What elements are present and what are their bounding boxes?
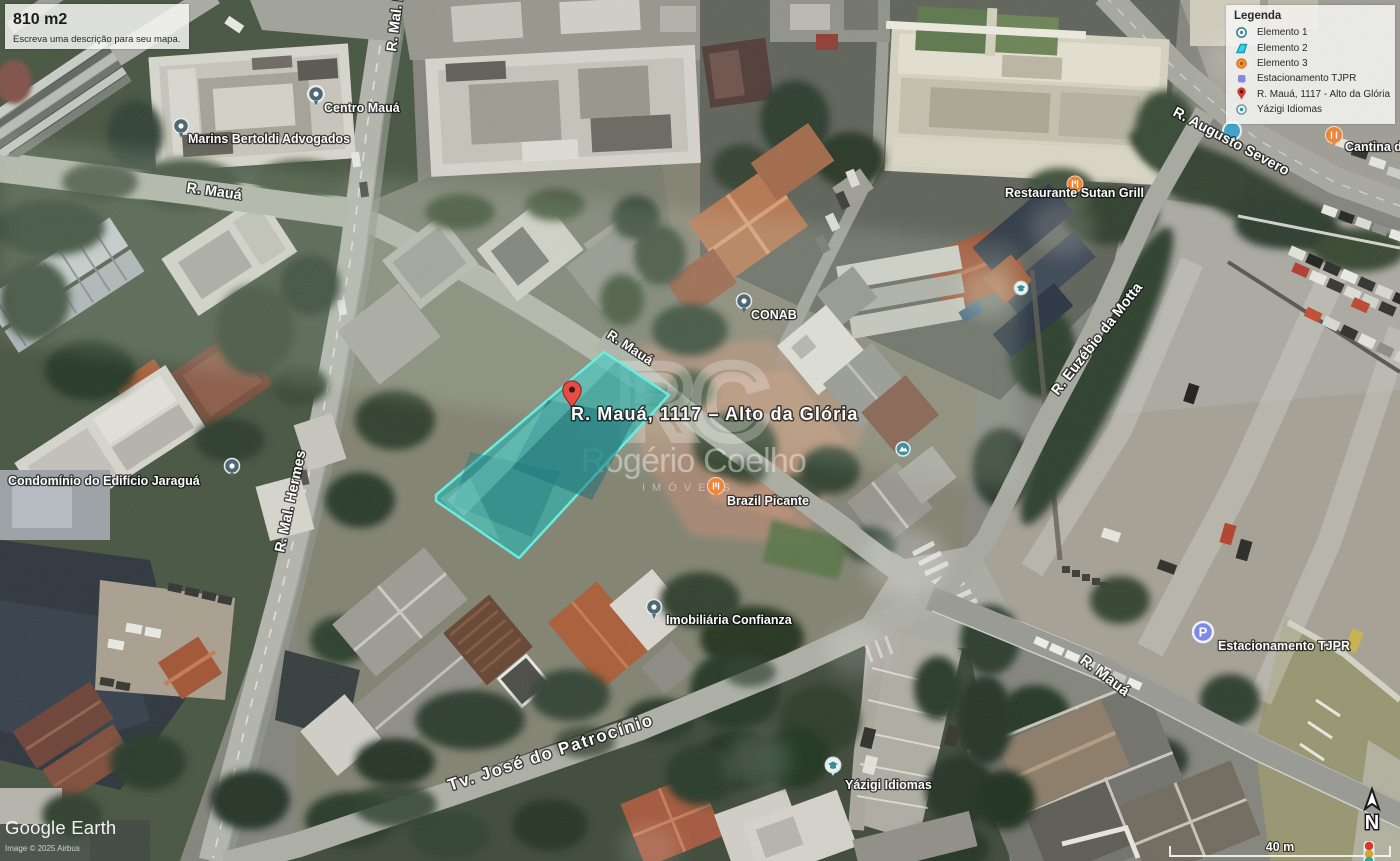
svg-text:N: N xyxy=(1365,812,1379,834)
svg-text:40 m: 40 m xyxy=(1266,840,1295,854)
